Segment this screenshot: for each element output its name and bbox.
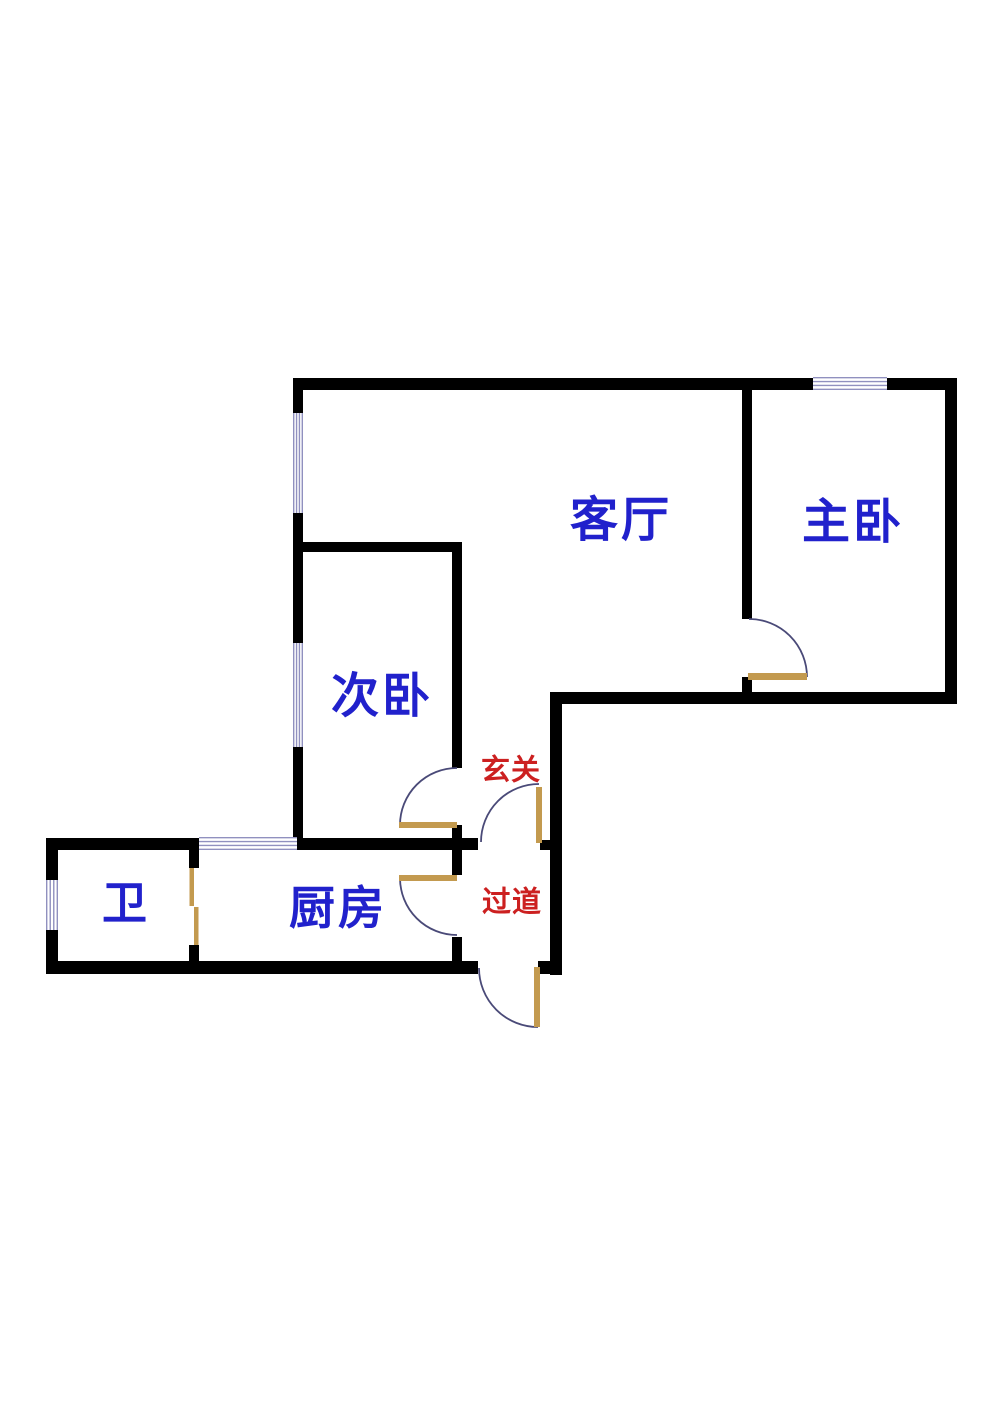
wall-master-divider-upper [742,378,752,619]
wall-foyer-divider-stub [540,840,562,850]
door-arc-entry-outer [479,968,538,1027]
wall-left-middle [293,513,303,643]
floor-plan-drawing [0,0,1000,1413]
wall-wc-top [46,838,199,850]
window-kitchen-top [199,837,297,850]
window-living-left [293,413,303,513]
wall-corridor-right [550,692,562,975]
door-leaf-entry-outer [534,967,540,1027]
door-leaf-entry-inner [536,787,542,843]
wall-corridor-left-upper [452,542,462,768]
door-leaf-master-bedroom [748,673,807,680]
wall-wc-divider-upper [189,838,199,868]
door-leaf-wc-slider-b [194,907,199,945]
wall-bedroom2-top [293,542,462,552]
wall-bottom-stub [538,961,562,974]
wall-bottom-main [46,961,478,974]
door-leaf-wc-slider-a [190,868,195,906]
wall-top-left [293,378,813,390]
door-arc-second-bedroom [400,768,457,825]
window-master-top [813,377,887,390]
wall-left-upper [293,378,303,413]
door-arc-entry-inner [481,784,539,842]
window-wc-left [46,880,58,930]
window-bedroom2-left [293,643,303,747]
wall-south-right-section [550,692,957,704]
wall-left-lower [293,747,303,850]
floor-plan: 客厅主卧次卧厨房卫玄关过道 [0,0,1000,1413]
wall-kitchen-top [297,838,478,850]
door-leaf-second-bedroom [399,822,457,828]
door-leaf-kitchen [399,875,457,881]
door-arc-master-bedroom [749,619,807,677]
wall-right-outer [945,378,957,704]
wall-wc-left-upper [46,838,58,880]
door-arc-kitchen [400,878,457,935]
